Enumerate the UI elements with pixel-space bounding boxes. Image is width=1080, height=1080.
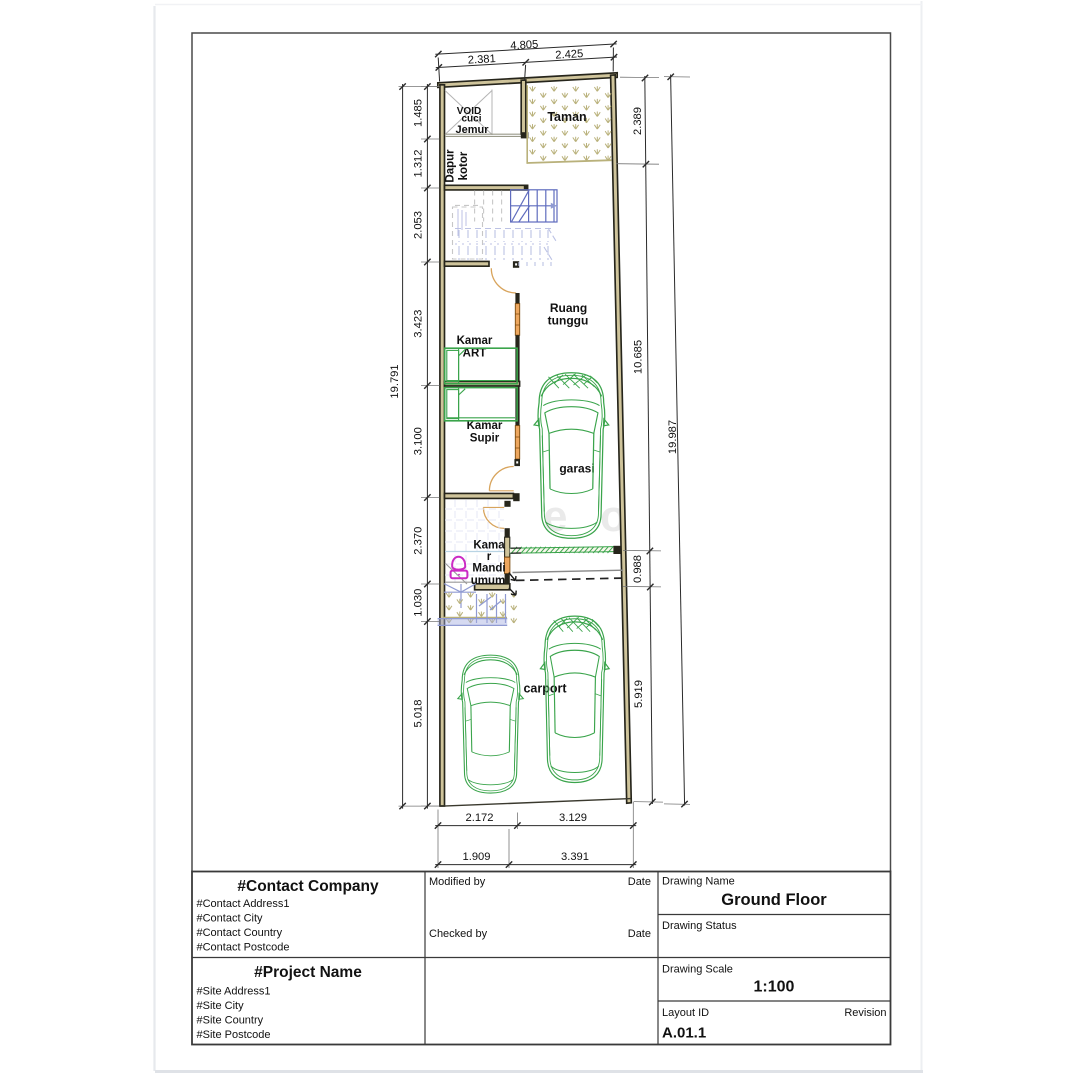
svg-text:ART: ART (463, 348, 487, 360)
svg-text:3.423: 3.423 (412, 310, 424, 338)
svg-text:2.370: 2.370 (412, 527, 424, 555)
svg-text:1.312: 1.312 (412, 150, 424, 178)
svg-text:4.805: 4.805 (510, 39, 539, 53)
svg-text:Ground Floor: Ground Floor (721, 891, 827, 909)
svg-text:#Contact Country: #Contact Country (197, 927, 283, 939)
svg-text:Drawing Status: Drawing Status (662, 920, 737, 932)
svg-text:1.485: 1.485 (412, 99, 424, 127)
svg-text:kotor: kotor (458, 151, 470, 180)
svg-text:2.425: 2.425 (555, 48, 584, 62)
svg-text:Mandi: Mandi (472, 563, 505, 575)
svg-text:A.01.1: A.01.1 (662, 1025, 706, 1042)
svg-text:1.030: 1.030 (412, 589, 424, 617)
svg-text:3.129: 3.129 (559, 812, 587, 824)
svg-text:3.100: 3.100 (412, 427, 424, 455)
svg-text:Kamar: Kamar (457, 335, 493, 347)
svg-text:#Contact Company: #Contact Company (237, 878, 379, 895)
svg-text:Jemur: Jemur (455, 124, 489, 136)
svg-text:5.018: 5.018 (412, 700, 424, 728)
svg-text:Drawing Scale: Drawing Scale (662, 964, 733, 976)
svg-text:Modified by: Modified by (429, 876, 486, 888)
svg-text:2.381: 2.381 (468, 53, 497, 67)
svg-text:5.919: 5.919 (633, 680, 645, 708)
svg-text:19.791: 19.791 (389, 364, 401, 398)
svg-text:Dapur: Dapur (445, 149, 457, 183)
svg-text:tunggu: tunggu (548, 314, 589, 328)
svg-text:Drawing Name: Drawing Name (662, 876, 735, 888)
svg-text:Date: Date (628, 876, 651, 888)
svg-text:#Project Name: #Project Name (254, 964, 362, 981)
svg-text:Kamar: Kamar (467, 420, 503, 432)
svg-text:e: e (543, 492, 567, 541)
svg-text:Checked by: Checked by (429, 928, 488, 940)
svg-text:#Site Address1: #Site Address1 (197, 986, 271, 998)
svg-text:2.172: 2.172 (466, 812, 494, 824)
svg-text:1:100: 1:100 (754, 979, 795, 996)
svg-text:Revision: Revision (844, 1007, 886, 1019)
svg-text:2.053: 2.053 (412, 211, 424, 239)
svg-text:#Site Country: #Site Country (197, 1015, 264, 1027)
svg-text:10.685: 10.685 (633, 340, 645, 374)
svg-text:Kama: Kama (473, 540, 505, 552)
svg-text:0.988: 0.988 (632, 555, 644, 583)
svg-text:#Site City: #Site City (197, 1000, 245, 1012)
svg-text:1.909: 1.909 (463, 851, 491, 863)
svg-text:Taman: Taman (547, 110, 586, 124)
svg-text:Supir: Supir (470, 433, 500, 445)
svg-text:3.391: 3.391 (561, 851, 589, 863)
svg-text:#Site Postcode: #Site Postcode (197, 1029, 271, 1041)
svg-text:#Contact Postcode: #Contact Postcode (197, 942, 290, 954)
svg-text:Layout ID: Layout ID (662, 1007, 709, 1019)
svg-text:2.389: 2.389 (632, 107, 644, 135)
svg-text:Date: Date (628, 928, 651, 940)
svg-text:umum: umum (471, 575, 506, 587)
svg-text:r: r (487, 551, 492, 563)
svg-text:19.987: 19.987 (667, 420, 679, 454)
svg-text:garasi: garasi (559, 462, 594, 476)
svg-text:#Contact City: #Contact City (197, 913, 264, 925)
svg-text:cuci: cuci (461, 114, 481, 125)
svg-text:#Contact Address1: #Contact Address1 (197, 898, 290, 910)
